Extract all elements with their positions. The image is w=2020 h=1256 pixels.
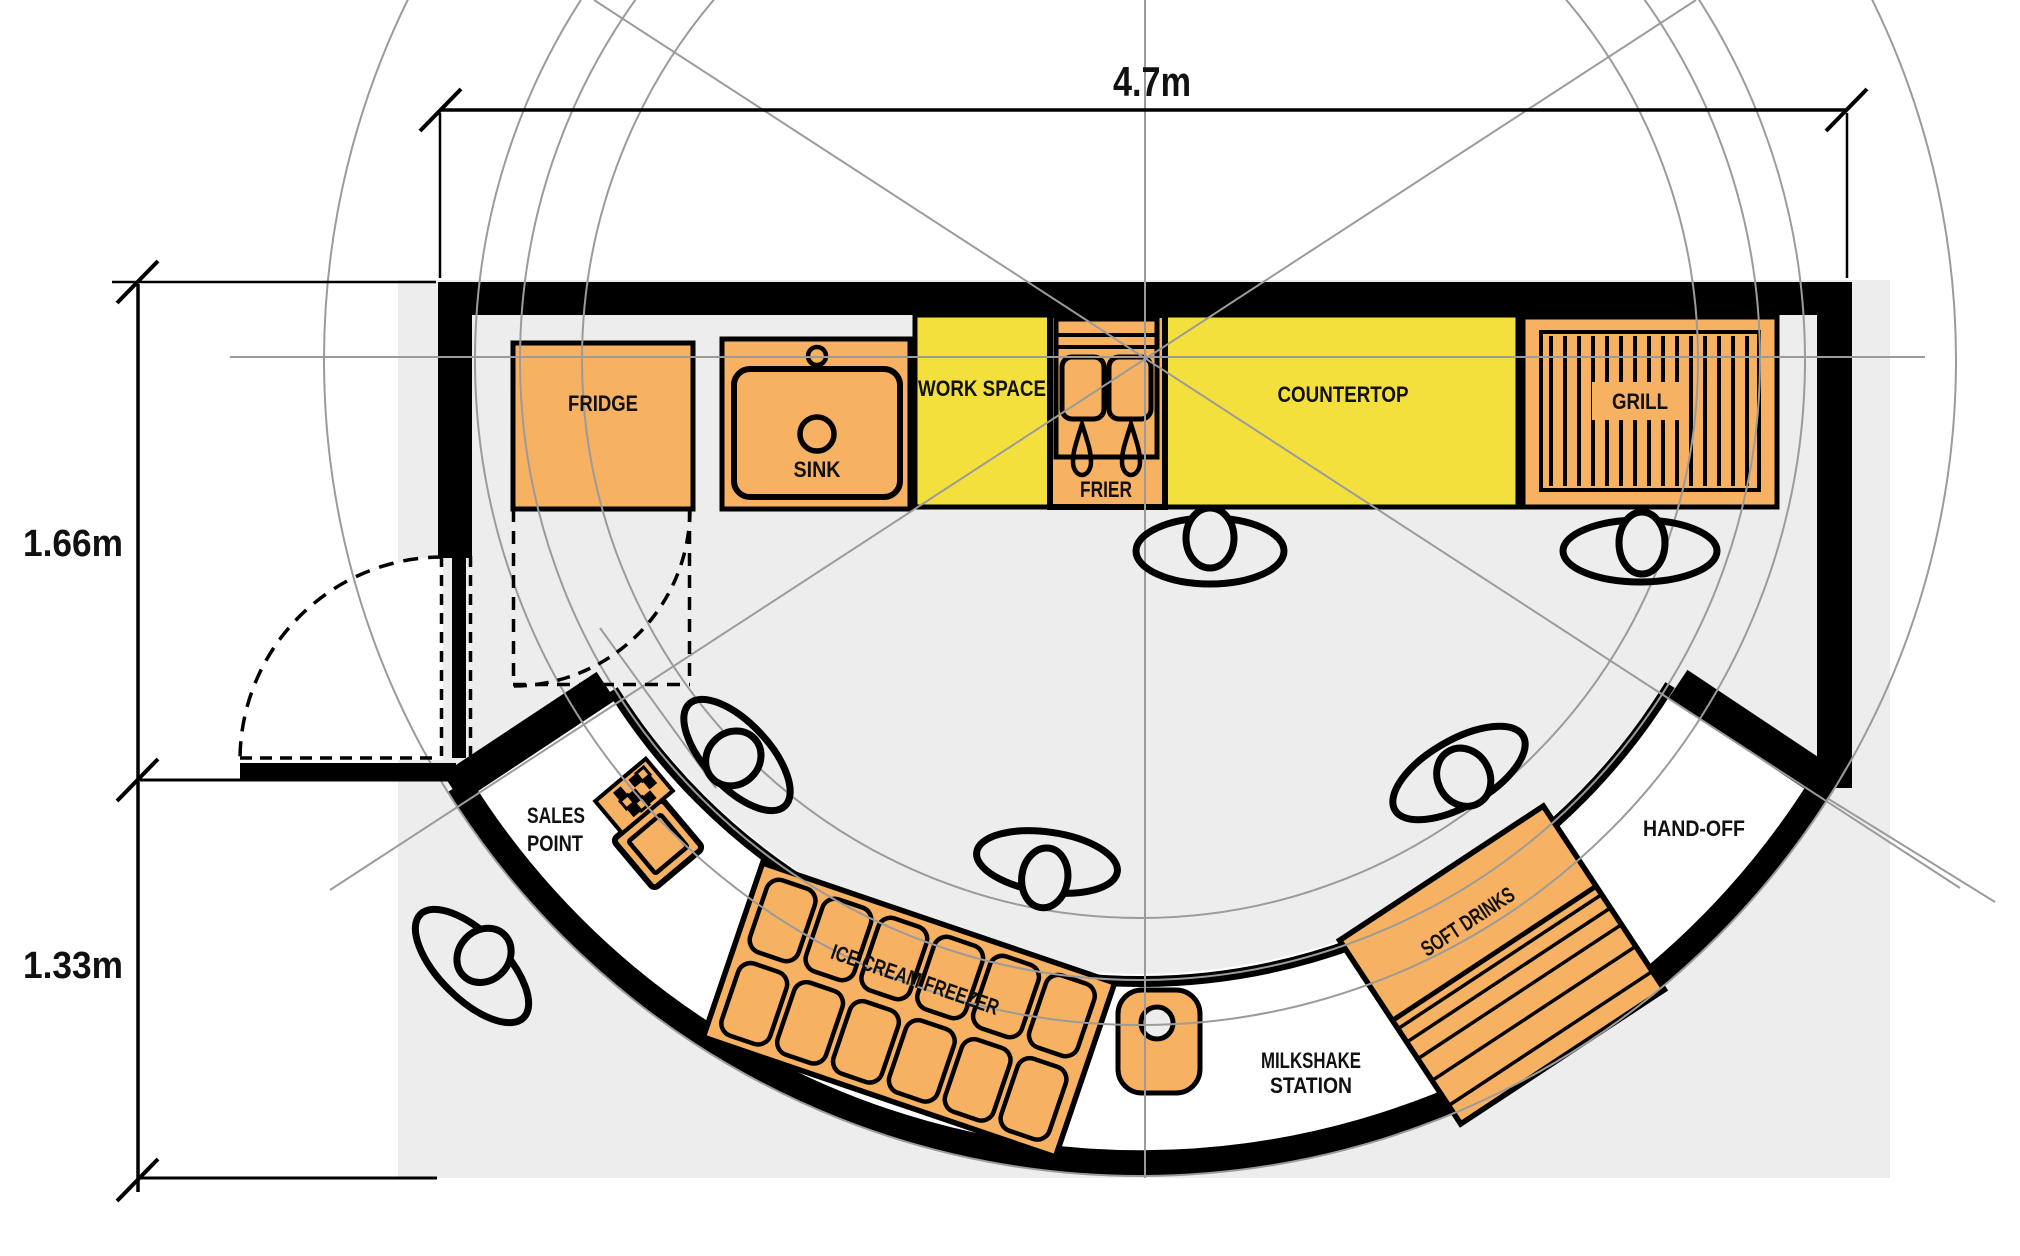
work-space-area [915,315,1050,507]
work-space-label: WORK SPACE [918,376,1046,401]
sink-drain [800,417,834,451]
countertop-area [1165,315,1518,507]
dim-label-left-lower: 1.33m [23,945,123,987]
sink-label: SINK [794,457,841,482]
fridge-label: FRIDGE [568,391,638,416]
grill-label: GRILL [1612,389,1668,414]
milkshake-label-line1: MILKSHAKE [1261,1048,1361,1073]
hand-off-label: HAND-OFF [1643,816,1745,841]
sales-point-label-line2: POINT [527,831,583,856]
wall-left [438,282,472,558]
sales-point-label-line1: SALES [527,803,585,828]
entrance-door-leaf [240,763,456,779]
frier-label: FRIER [1080,477,1132,502]
countertop-label: COUNTERTOP [1278,382,1409,407]
milkshake-label-line2: STATION [1270,1073,1352,1098]
floor-plan-drawing: FRIDGE SINK WORK SPACE FRIER COUNTERTOP … [0,0,2020,1256]
dim-label-top: 4.7m [1113,58,1191,105]
counter-surfaces [915,315,1518,507]
floor-plan-page: FRIDGE SINK WORK SPACE FRIER COUNTERTOP … [0,0,2020,1256]
fridge-unit [513,343,693,509]
door-jamb-strip [452,556,466,758]
dim-label-left-upper: 1.66m [23,523,123,565]
